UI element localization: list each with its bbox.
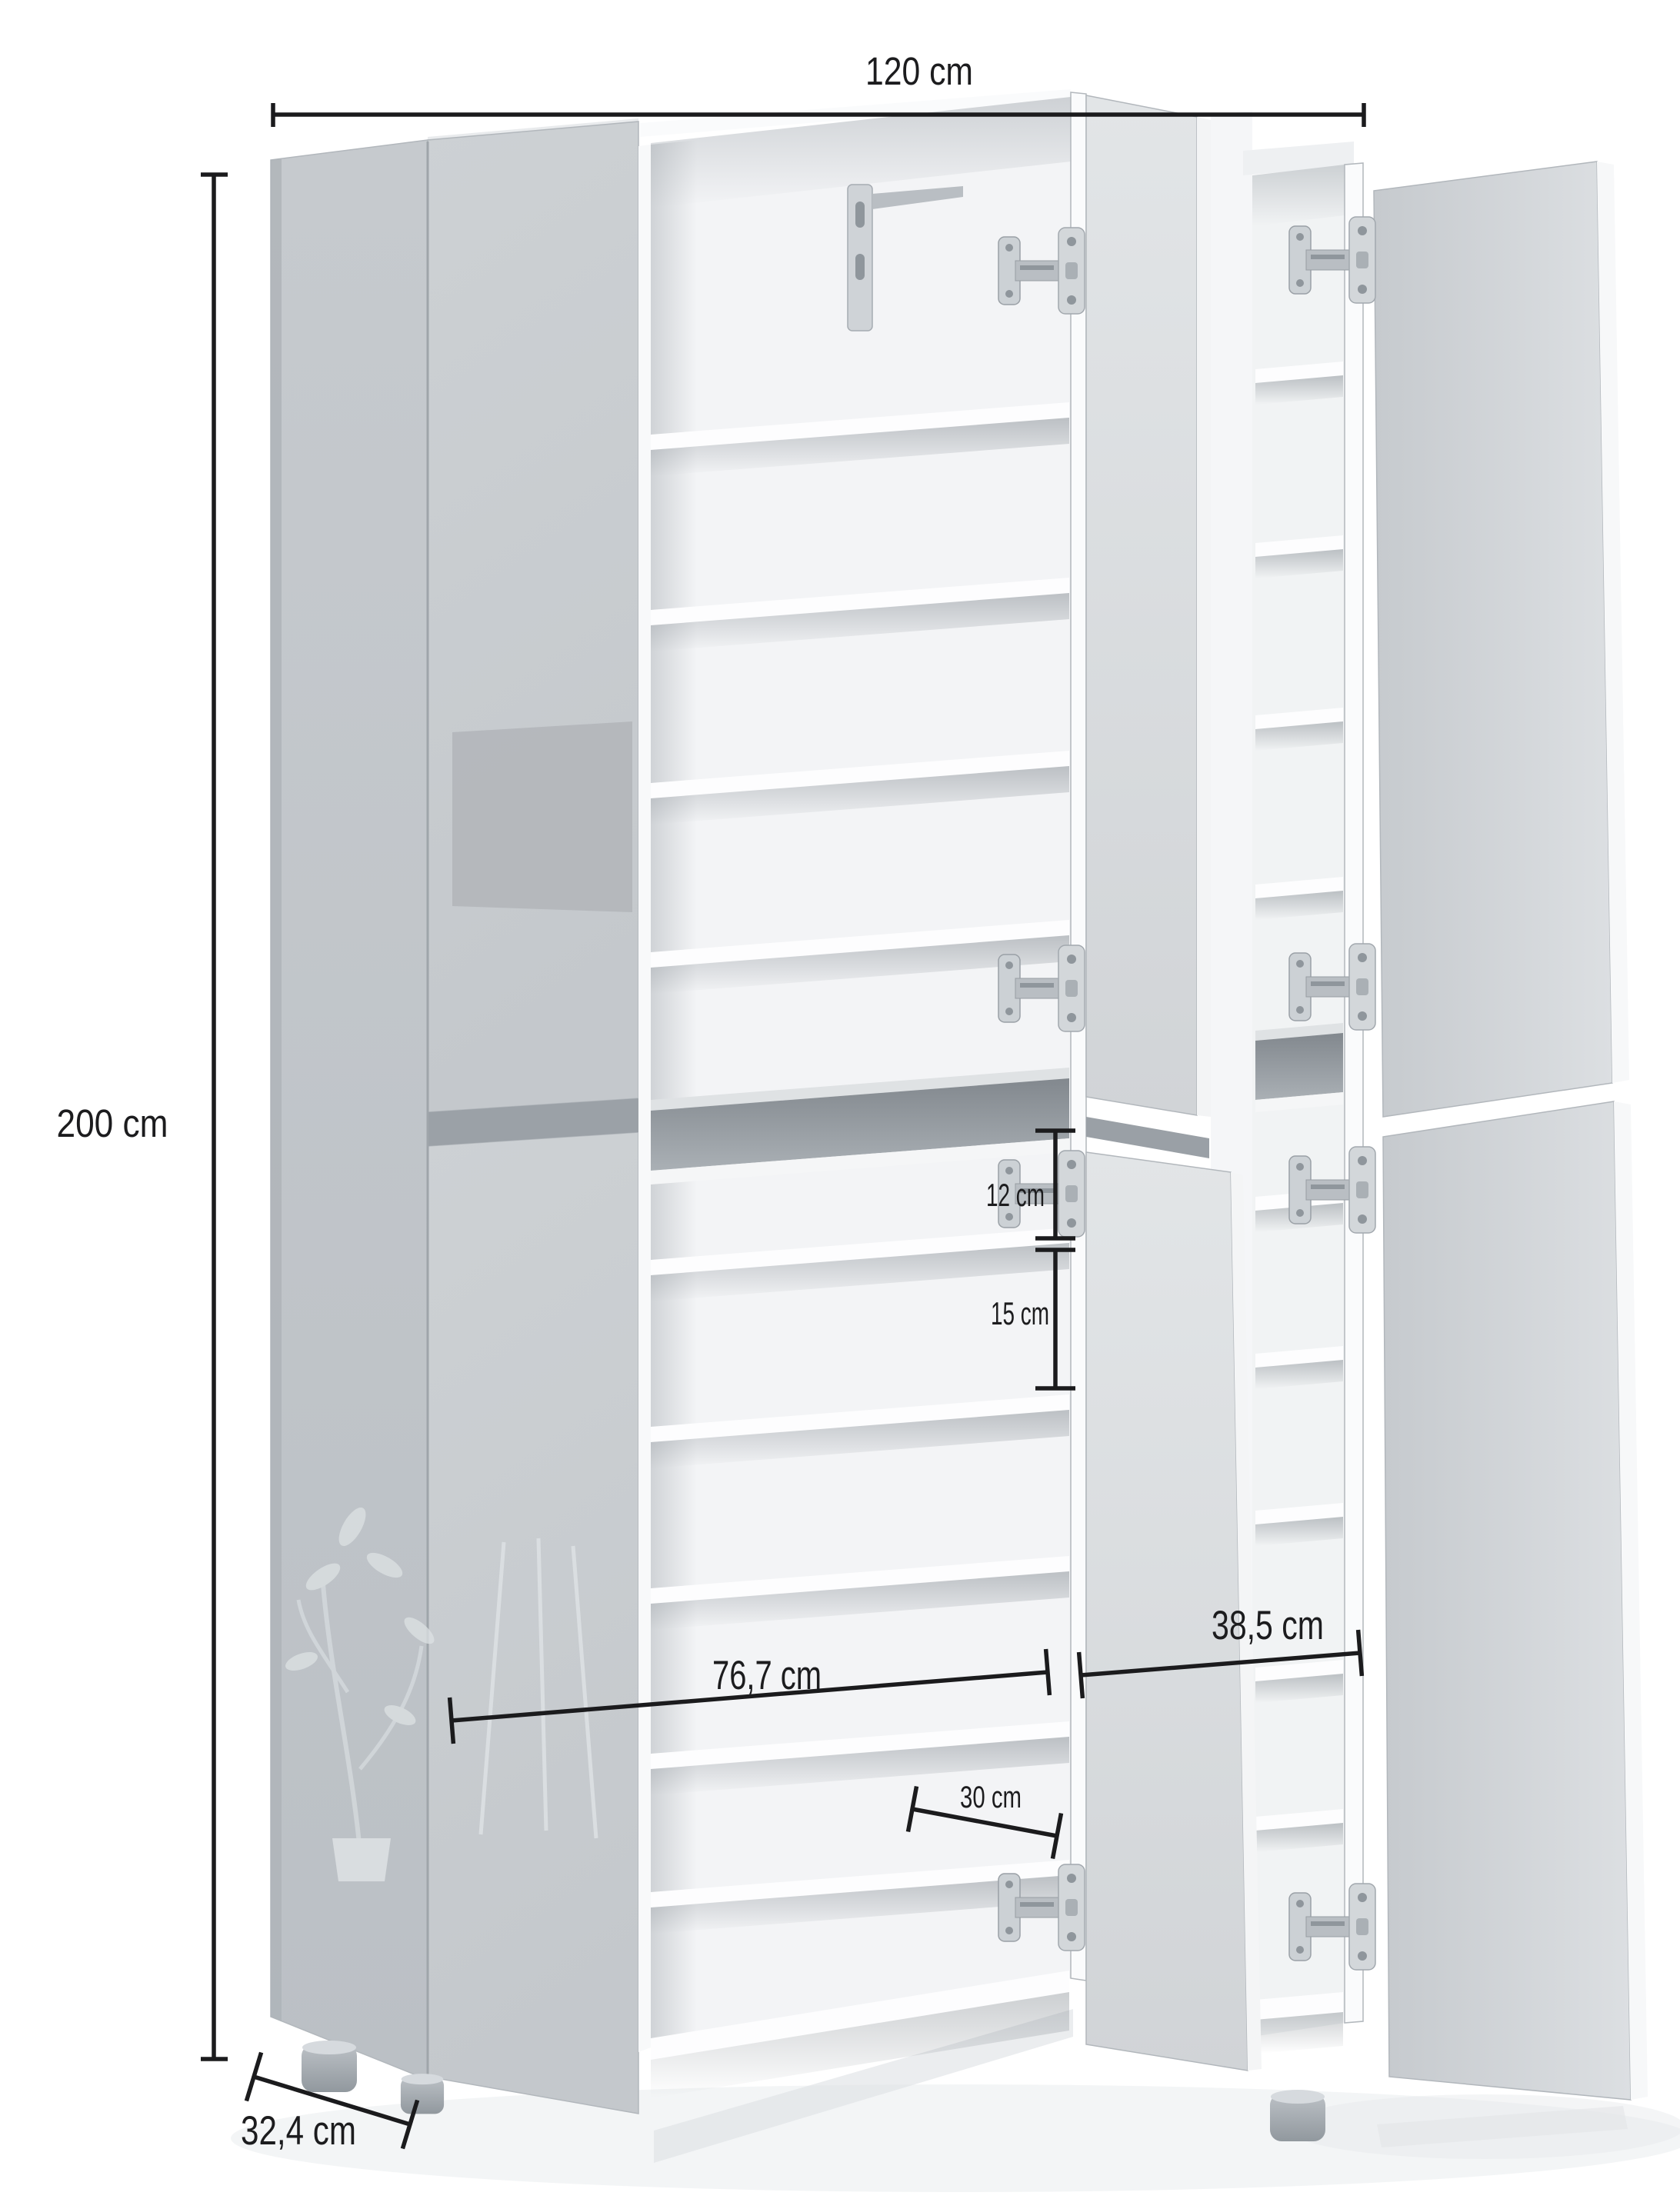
side-panel-edge — [271, 158, 282, 2021]
foot — [1270, 2090, 1325, 2141]
closed-door-lower — [428, 1132, 638, 2114]
dim-width-total-label: 120 cm — [865, 49, 973, 93]
right-side-panel-edge — [1345, 163, 1363, 2023]
open-door-right-upper — [1374, 162, 1612, 1117]
cabinet-side-panel — [271, 140, 428, 2080]
dim-shelf-gap-top-label: 12 cm — [986, 1177, 1045, 1213]
dim-depth-total-label: 32,4 cm — [241, 2108, 356, 2154]
dim-inner-width-left-label: 76,7 cm — [712, 1653, 822, 1698]
dim-inner-width-right-label: 38,5 cm — [1212, 1603, 1324, 1648]
right-top-shade — [1252, 165, 1345, 226]
door-edge — [1197, 117, 1211, 1117]
open-door-right-lower — [1383, 1101, 1631, 2100]
dim-shelf-depth-label: 30 cm — [960, 1781, 1022, 1814]
open-door-center-upper — [1086, 95, 1197, 1115]
closed-door-upper — [428, 122, 638, 1112]
middle-niche-right — [1255, 1023, 1343, 1112]
door-reflection-rect — [452, 721, 632, 912]
dim-height-total-label: 200 cm — [57, 1101, 168, 1145]
bottom-board — [1255, 1992, 1343, 2054]
foot — [401, 2074, 444, 2114]
dimension-diagram: 120 cm 200 cm 32,4 cm 76,7 cm 38,5 cm — [0, 0, 1680, 2209]
foot — [302, 2041, 357, 2092]
opening-left-edge — [638, 145, 651, 2052]
dim-shelf-gap-bottom-label: 15 cm — [991, 1295, 1049, 1331]
